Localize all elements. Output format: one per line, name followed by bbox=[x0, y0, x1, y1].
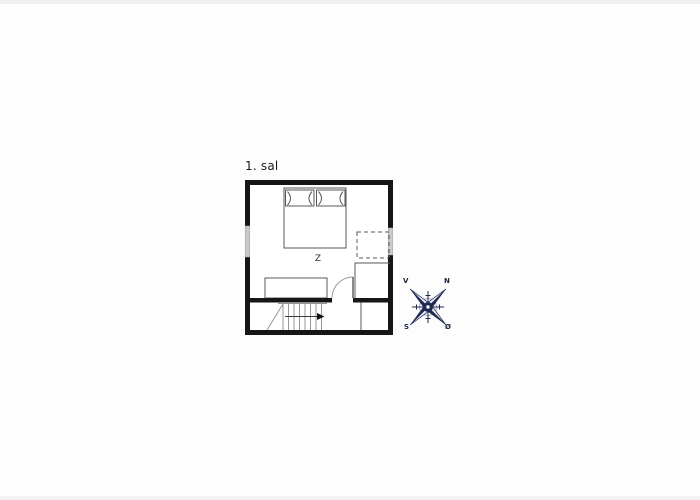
edge-strip-top bbox=[0, 0, 700, 4]
double-bed bbox=[284, 188, 346, 248]
compass-label-east: Ø bbox=[445, 324, 451, 331]
pillow-left bbox=[286, 190, 315, 206]
interior-wall-left bbox=[245, 298, 332, 303]
window-left bbox=[245, 226, 250, 257]
compass-label-north: N bbox=[444, 278, 450, 285]
edge-strip-bottom bbox=[0, 496, 700, 500]
room-label-z: Z bbox=[311, 254, 325, 264]
compass-rose-icon: V N S Ø bbox=[396, 272, 464, 336]
floor-plan-drawing bbox=[240, 155, 400, 340]
floor-plan-page: 1. sal bbox=[0, 0, 700, 500]
interior-wall-right bbox=[353, 298, 393, 303]
cabinet bbox=[265, 278, 327, 298]
compass-label-south: S bbox=[404, 324, 409, 331]
pillow-right bbox=[317, 190, 346, 206]
compass-label-west: V bbox=[403, 278, 408, 285]
compass-hub-dot bbox=[426, 305, 429, 308]
